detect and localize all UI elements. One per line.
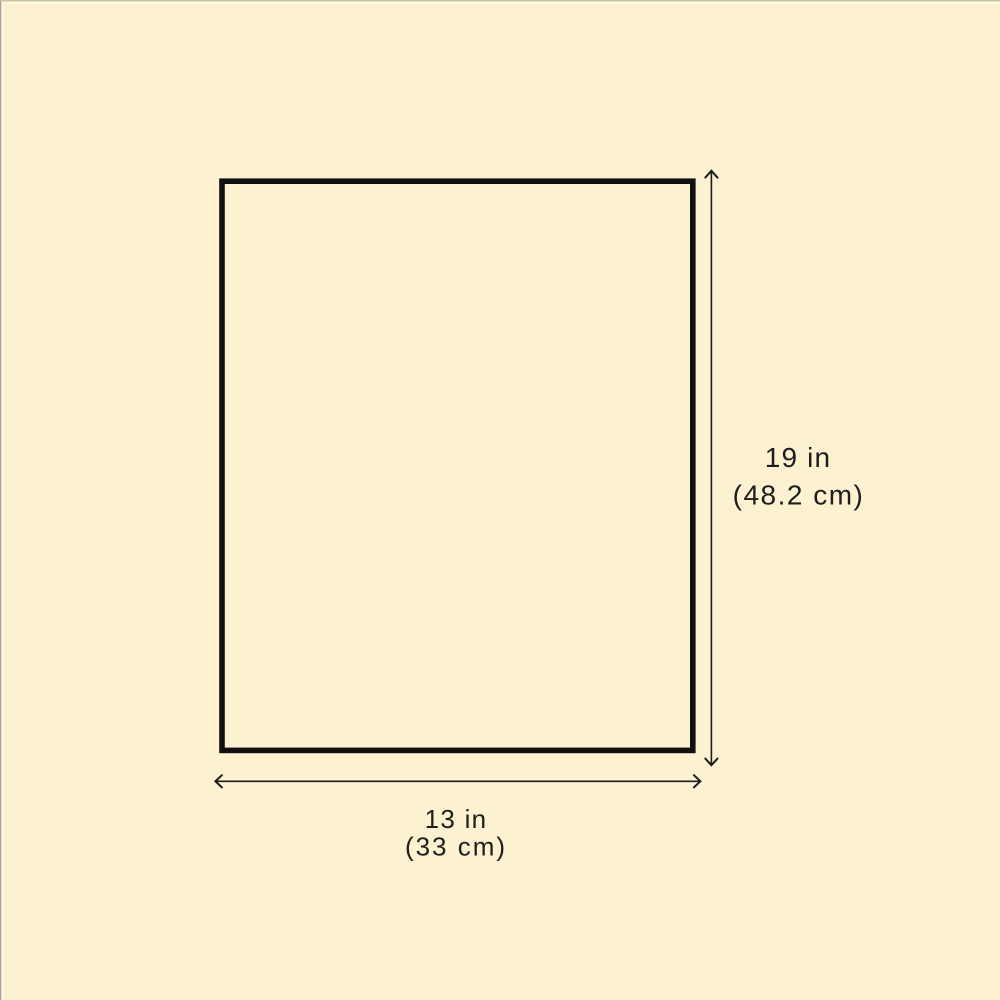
svg-text:19 in: 19 in	[765, 442, 831, 473]
svg-text:(48.2 cm): (48.2 cm)	[733, 479, 865, 510]
svg-text:13 in: 13 in	[425, 804, 488, 834]
svg-text:(33 cm): (33 cm)	[405, 832, 507, 862]
